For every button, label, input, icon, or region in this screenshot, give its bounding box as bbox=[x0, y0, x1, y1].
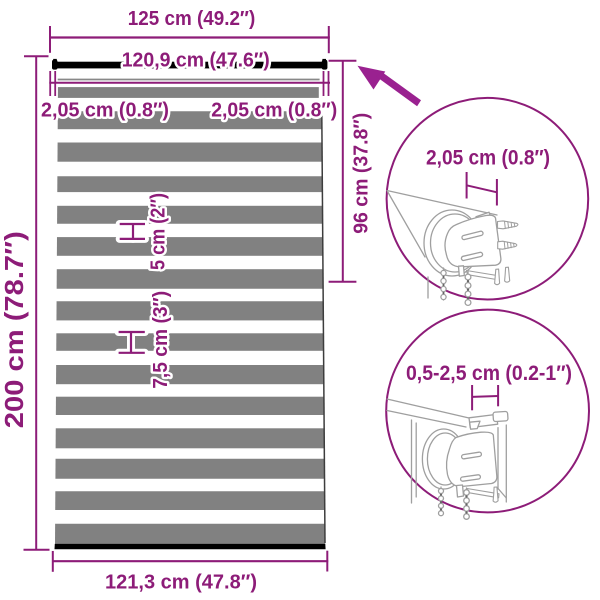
svg-text:5 cm (2″): 5 cm (2″) bbox=[148, 193, 170, 270]
svg-text:200 cm (78.7″): 200 cm (78.7″) bbox=[0, 231, 29, 428]
svg-text:2,05 cm (0.8″): 2,05 cm (0.8″) bbox=[211, 100, 337, 122]
svg-text:121,3 cm (47.8″): 121,3 cm (47.8″) bbox=[105, 572, 257, 594]
svg-text:125 cm (49.2″): 125 cm (49.2″) bbox=[128, 8, 256, 30]
svg-text:2,05 cm (0.8″): 2,05 cm (0.8″) bbox=[41, 100, 169, 122]
svg-text:7,5 cm (3″): 7,5 cm (3″) bbox=[150, 291, 172, 389]
svg-text:0,5-2,5 cm (0.2-1″): 0,5-2,5 cm (0.2-1″) bbox=[406, 362, 572, 385]
svg-text:96 cm (37.8″): 96 cm (37.8″) bbox=[351, 113, 373, 234]
svg-text:120,9 cm (47.6″): 120,9 cm (47.6″) bbox=[122, 49, 270, 71]
svg-text:2,05 cm (0.8″): 2,05 cm (0.8″) bbox=[426, 147, 550, 170]
